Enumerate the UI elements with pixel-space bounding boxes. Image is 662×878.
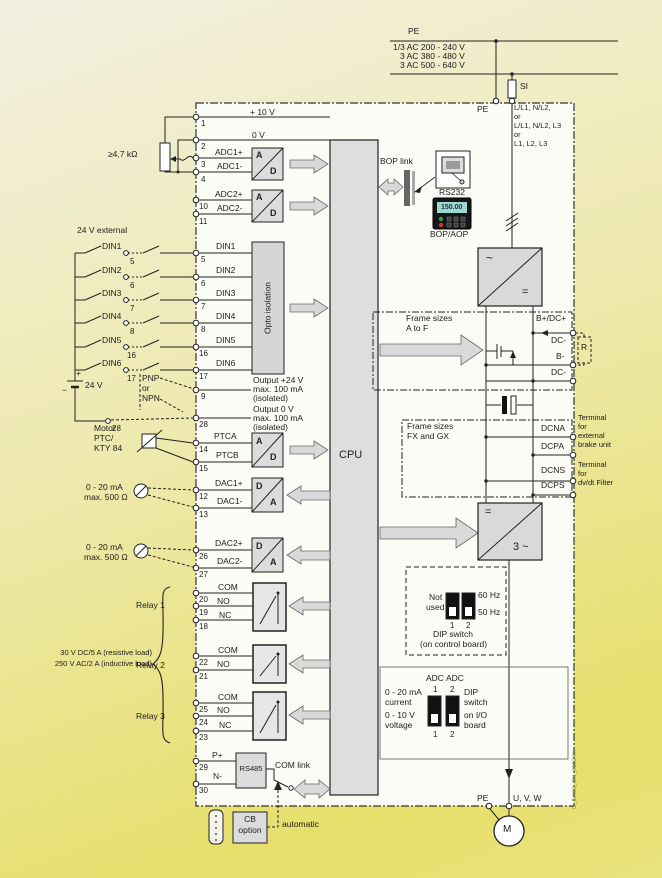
- label-adc1m: ADC1-: [217, 162, 243, 171]
- pin-6: 6: [201, 279, 205, 288]
- input-or1: or: [514, 113, 521, 121]
- label-adc1p: ADC1+: [215, 148, 243, 157]
- din4-in: DIN4: [216, 312, 235, 321]
- ptc-ptc: PTC/: [94, 434, 113, 443]
- pot-label: ≥4,7 kΩ: [108, 150, 137, 159]
- dip2-switch: switch: [464, 698, 488, 707]
- pin-12: 12: [199, 492, 208, 501]
- frame-af-1: Frame sizes: [406, 314, 452, 323]
- fuse-si-symbol: [508, 80, 516, 98]
- relay-boxes: [253, 583, 286, 740]
- dip2-t1: 1: [433, 685, 437, 694]
- label-adc2m: ADC2-: [217, 204, 243, 213]
- pin-3: 3: [201, 160, 205, 169]
- ptc-a: A: [256, 436, 263, 446]
- adc1-a: A: [256, 150, 263, 160]
- r2-no: NO: [217, 660, 230, 669]
- dip2-cur1: 0 - 20 mA: [385, 688, 422, 697]
- label-pplus: P+: [212, 751, 223, 760]
- label-dac2m: DAC2-: [217, 557, 243, 566]
- din1-in: DIN1: [216, 242, 235, 251]
- pin-10: 10: [199, 202, 208, 211]
- pin-14: 14: [199, 445, 208, 454]
- label-10v: + 10 V: [250, 108, 275, 117]
- din5-out: DIN5: [102, 336, 121, 345]
- pin-21: 21: [199, 672, 208, 681]
- dip2-b2: 2: [450, 730, 454, 739]
- pin-28: 28: [199, 420, 208, 429]
- pin-1: 1: [201, 119, 205, 128]
- pin-20: 20: [199, 595, 208, 604]
- rectifier-dc: =: [522, 286, 528, 298]
- npn-label: NPN: [142, 394, 160, 403]
- dip2-io: on I/O: [464, 711, 487, 720]
- pin-15: 15: [199, 464, 208, 473]
- pin-19: 19: [199, 608, 208, 617]
- dac-meters: [134, 484, 193, 567]
- ext-pin-28: 28: [112, 424, 121, 433]
- out0-iso: (isolated): [253, 423, 288, 432]
- adc2-d: D: [270, 208, 277, 218]
- brake-3: external: [578, 432, 605, 440]
- input-l2: L/L1, N/L2, L3: [514, 122, 561, 130]
- rs232-label: RS232: [439, 188, 465, 197]
- din2-in: DIN2: [216, 266, 235, 275]
- dip2-cur2: current: [385, 698, 411, 707]
- adc1-d: D: [270, 166, 277, 176]
- label-ptcb: PTCB: [216, 451, 239, 460]
- ext-pin-6: 6: [130, 281, 134, 290]
- motor-pe: PE: [477, 794, 488, 803]
- din6-out: DIN6: [102, 359, 121, 368]
- din4-out: DIN4: [102, 312, 121, 321]
- label-adc2p: ADC2+: [215, 190, 243, 199]
- green-button: [439, 217, 443, 221]
- din2-out: DIN2: [102, 266, 121, 275]
- dac2-a: A: [270, 557, 277, 567]
- din-switch-blades-outer: [85, 246, 101, 370]
- pnp-label: PNP: [142, 374, 159, 383]
- fuse-label: SI: [520, 82, 528, 91]
- dip1-used: used: [426, 603, 444, 612]
- r3-com: COM: [218, 693, 238, 702]
- term-dcns: DCNS: [541, 466, 565, 475]
- motor-uvw: U, V, W: [513, 794, 542, 803]
- r2-com: COM: [218, 646, 238, 655]
- din5-in: DIN5: [216, 336, 235, 345]
- dac1-load: max. 500 Ω: [84, 493, 128, 502]
- pin-17: 17: [199, 372, 208, 381]
- pin-27: 27: [199, 570, 208, 579]
- dc-link-capacitor: [502, 396, 507, 414]
- term-dcps: DCPS: [541, 481, 565, 490]
- brake-1: Terminal: [578, 414, 606, 422]
- relay1-label: Relay 1: [136, 601, 165, 610]
- pin-24: 24: [199, 718, 208, 727]
- pin-26: 26: [199, 552, 208, 561]
- frame-af-2: A to F: [406, 324, 428, 333]
- watermark: G_DA51_EN_05024h: [572, 751, 578, 809]
- r1-no: NO: [217, 597, 230, 606]
- pin-2: 2: [201, 142, 205, 151]
- ext-pin-7: 7: [130, 304, 134, 313]
- pin-8: 8: [201, 325, 205, 334]
- label-0v: 0 V: [252, 131, 265, 140]
- potentiometer: [160, 117, 193, 174]
- cpu-label: CPU: [339, 449, 362, 461]
- pin-22: 22: [199, 658, 208, 667]
- ext-pin-17: 17: [127, 374, 136, 383]
- dip2-adc1: ADC: [426, 674, 444, 683]
- label-dac1p: DAC1+: [215, 479, 243, 488]
- input-l1: L/L1, N/L2,: [514, 104, 551, 112]
- relay3-label: Relay 3: [136, 712, 165, 721]
- dvdt-1: Terminal: [578, 461, 606, 469]
- frame-fx-2: FX and GX: [407, 432, 449, 441]
- dip1-60hz: 60 Hz: [478, 591, 500, 600]
- inverter-dc: =: [485, 506, 491, 518]
- din3-out: DIN3: [102, 289, 121, 298]
- dac1-a: A: [270, 497, 277, 507]
- batt-label: 24 V: [85, 381, 103, 390]
- dip2-b1: 1: [433, 730, 437, 739]
- batt-plus: +: [76, 369, 81, 378]
- cb-label: CB: [233, 815, 267, 824]
- dip1-not: Not: [429, 593, 442, 602]
- dip2-adc2: ADC: [446, 674, 464, 683]
- pin-11: 11: [199, 217, 207, 226]
- r3-no: NO: [217, 706, 230, 715]
- pin-30: 30: [199, 786, 208, 795]
- motor-m: M: [503, 824, 511, 835]
- bop-aop-label: BOP/AOP: [430, 230, 468, 239]
- input-or2: or: [514, 131, 521, 139]
- dip2-board: board: [464, 721, 486, 730]
- input-pe-label: PE: [477, 105, 488, 114]
- pin-29: 29: [199, 763, 208, 772]
- bop-display-value: 150.00: [441, 204, 462, 211]
- r1-nc: NC: [219, 611, 231, 620]
- pin-7: 7: [201, 302, 205, 311]
- mains-v3: 3 AC 500 - 640 V: [400, 61, 465, 70]
- inverter-block-diagram: PE 1/3 AC 200 - 240 V 3 AC 380 - 480 V 3…: [0, 0, 662, 878]
- dac2-d: D: [256, 541, 263, 551]
- rectifier-ac: ~: [486, 251, 493, 265]
- label-nminus: N-: [213, 772, 222, 781]
- pin-9: 9: [201, 392, 205, 401]
- ptc-d: D: [270, 452, 277, 462]
- term-bdc: B+/DC+: [536, 314, 566, 323]
- adc2-a: A: [256, 192, 263, 202]
- batt-minus: −: [62, 386, 67, 395]
- ext-pin-8: 8: [130, 327, 134, 336]
- label-dac2p: DAC2+: [215, 539, 243, 548]
- r3-nc: NC: [219, 721, 231, 730]
- pin-18: 18: [199, 622, 208, 631]
- term-dc1: DC-: [551, 336, 566, 345]
- label-ptca: PTCA: [214, 432, 237, 441]
- dac1-d: D: [256, 481, 263, 491]
- ext-pin-5: 5: [130, 257, 134, 266]
- dvdt-3: dv/dt Filter: [578, 479, 613, 487]
- inverter-ac: 3 ~: [513, 541, 529, 553]
- dac1-range: 0 - 20 mA: [86, 483, 123, 492]
- dac2-load: max. 500 Ω: [84, 553, 128, 562]
- mains-pe-label: PE: [408, 27, 419, 36]
- dip1-50hz: 50 Hz: [478, 608, 500, 617]
- pin-13: 13: [199, 510, 208, 519]
- or-label: or: [142, 384, 150, 393]
- pin-5: 5: [201, 255, 205, 264]
- dvdt-2: for: [578, 470, 587, 478]
- label-dac1m: DAC1-: [217, 497, 243, 506]
- relay-load2: 250 V AC/2 A (inductive load): [2, 660, 152, 668]
- dip1-cap1: DIP switch: [433, 630, 473, 639]
- din6-in: DIN6: [216, 359, 235, 368]
- pin-4: 4: [201, 175, 205, 184]
- pin-23: 23: [199, 733, 208, 742]
- dip2-v1: 0 - 10 V: [385, 711, 415, 720]
- r1-com: COM: [218, 583, 238, 592]
- ptc-sensor: [137, 430, 193, 462]
- brake-2: for: [578, 423, 587, 431]
- dip2-dip: DIP: [464, 688, 478, 697]
- din1-out: DIN1: [102, 242, 121, 251]
- resistor-r: R: [581, 343, 587, 352]
- din-switch-blades-inner: [143, 246, 159, 370]
- dac2-range: 0 - 20 mA: [86, 543, 123, 552]
- rs485-label: RS485: [236, 765, 266, 773]
- din-ext-label: 24 V external: [77, 226, 127, 235]
- bop-link-label: BOP link: [380, 157, 413, 166]
- pin-25: 25: [199, 705, 208, 714]
- com-link-label: COM link: [275, 761, 310, 770]
- relay-load1: 30 V DC/5 A (resistive load): [2, 649, 152, 657]
- pin-16: 16: [199, 349, 208, 358]
- input-l3: L1, L2, L3: [514, 140, 547, 148]
- term-bm: B-: [556, 352, 565, 361]
- dip1-cap2: (on control board): [420, 640, 487, 649]
- cb-option-label: option: [233, 826, 267, 835]
- dip2-t2: 2: [450, 685, 454, 694]
- term-dcna: DCNA: [541, 424, 565, 433]
- brake-4: brake unit: [578, 441, 611, 449]
- automatic-label: automatic: [282, 820, 319, 829]
- term-dcpa: DCPA: [541, 442, 564, 451]
- opto-label: Opto isolation: [263, 282, 272, 334]
- ptc-kty: KTY 84: [94, 444, 122, 453]
- bop-connector: [404, 170, 410, 206]
- ext-pin-16: 16: [127, 351, 136, 360]
- dip2-v2: voltage: [385, 721, 412, 730]
- out24-iso: (isolated): [253, 394, 288, 403]
- term-dc2: DC-: [551, 368, 566, 377]
- din3-in: DIN3: [216, 289, 235, 298]
- frame-fx-1: Frame sizes: [407, 422, 453, 431]
- cpu-box: [330, 140, 378, 795]
- red-button: [439, 223, 443, 227]
